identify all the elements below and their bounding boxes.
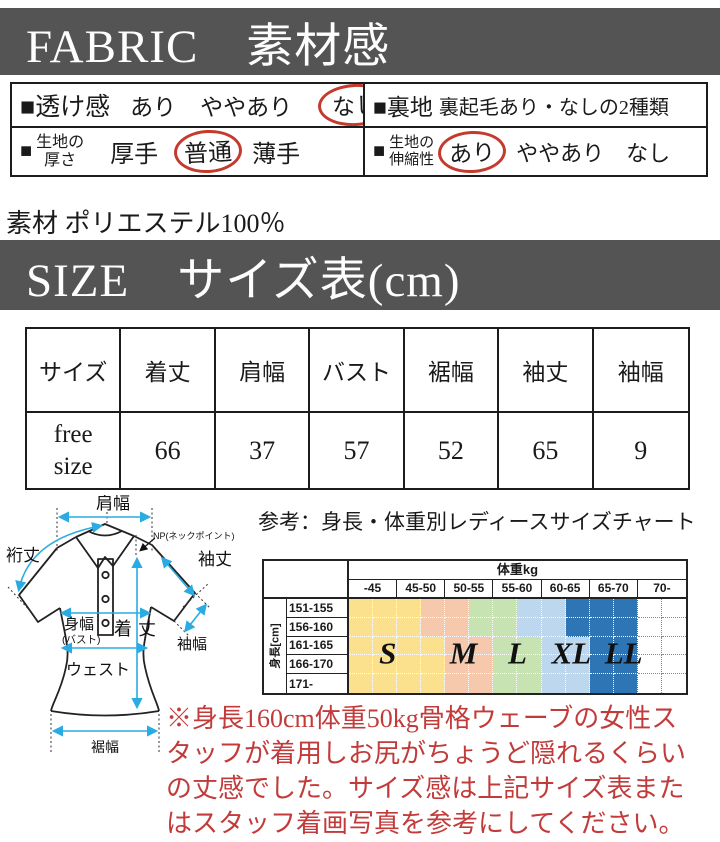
size-chart-cell (445, 599, 469, 618)
size-chart-cell (638, 599, 662, 618)
arrow-sleeve-width (186, 606, 205, 630)
size-chart-cell (662, 637, 686, 656)
fabric-option: 厚手 (110, 134, 158, 169)
size-chart-cell (614, 599, 638, 618)
size-chart-cell (542, 618, 566, 637)
size-chart-cell (421, 637, 445, 656)
fabric-option: ややあり (516, 136, 604, 168)
size-chart-cell (445, 618, 469, 637)
label-sleeve-width: 袖幅 (177, 636, 207, 653)
size-chart-cell (662, 674, 686, 693)
page: FABRIC 素材感 ■透け感 あり ややあり なし ■裏地 裏起毛あり・なしの… (0, 0, 720, 842)
height-rows-column: 151-155156-160161-165166-170171- (287, 599, 349, 693)
size-chart-cell (373, 599, 397, 618)
note-line: はスタッフ着画写真を参考にしてください。 (166, 806, 686, 841)
size-table-header-cell: バスト (310, 329, 404, 413)
stretch-label: 生地の 伸縮性 (389, 135, 434, 169)
size-chart-cell (662, 618, 686, 637)
size-chart-cell (542, 674, 566, 693)
weight-columns-row: -4545-5050-5555-6060-6565-7070- (349, 580, 686, 599)
size-table-row-label: free size (27, 413, 121, 488)
size-chart-cell (493, 674, 517, 693)
size-chart-cell (590, 599, 614, 618)
size-table-header-cell: 袖丈 (499, 329, 593, 413)
reference-chart-caption: 参考：身長・体重別レディースサイズチャート (258, 506, 696, 536)
size-chart-letter: LL (605, 637, 643, 668)
size-chart-cell (566, 674, 590, 693)
size-chart-cell (638, 618, 662, 637)
size-chart-cell (421, 655, 445, 674)
weight-col-label: 70- (638, 580, 686, 597)
size-chart-cell (421, 618, 445, 637)
lining-label: ■裏地 (373, 88, 433, 122)
size-chart-cell (373, 674, 397, 693)
size-chart-cell (421, 674, 445, 693)
weight-header-cell: 体重kg (349, 561, 686, 580)
height-row-label: 166-170 (287, 655, 347, 674)
bullet-square: ■ (20, 140, 32, 163)
note-text: ※身長160cm体重50kg骨格ウェーブの女性ス タッフが着用しお尻がちょうど隠… (166, 701, 686, 841)
circled-option: なし (317, 84, 365, 128)
label-body-width: 身幅 (64, 616, 94, 633)
lining-value: 裏起毛あり・なしの2種類 (439, 91, 669, 120)
size-chart-cell (397, 674, 421, 693)
size-chart-cell (662, 599, 686, 618)
size-chart-letter: S (379, 637, 396, 668)
size-chart-cell (349, 637, 373, 656)
size-chart-cell (373, 618, 397, 637)
fabric-row-stretch: ■ 生地の 伸縮性 あり ややあり なし (365, 128, 706, 175)
size-chart-cell (397, 655, 421, 674)
fabric-option: 薄手 (252, 134, 300, 169)
size-chart-cell (469, 618, 493, 637)
fabric-banner-title: FABRIC 素材感 (0, 7, 390, 76)
size-table-value-cell: 52 (405, 413, 499, 488)
label-garment-length: 着丈 (114, 619, 162, 639)
fabric-option: なし (626, 136, 670, 168)
fabric-banner: FABRIC 素材感 (0, 8, 720, 75)
note-line: の丈感でした。サイズ感は上記サイズ表また (166, 771, 686, 806)
size-table-header-cell: 袖幅 (594, 329, 688, 413)
weight-col-label: 65-70 (590, 580, 638, 597)
bullet-square: ■ (373, 140, 385, 163)
size-chart-cell (614, 674, 638, 693)
note-line: ※身長160cm体重50kg骨格ウェーブの女性ス (166, 701, 686, 736)
size-table-value-cell: 9 (594, 413, 688, 488)
fabric-row-lining: ■裏地 裏起毛あり・なしの2種類 (365, 84, 706, 128)
size-chart-cell (349, 674, 373, 693)
size-chart-cell (397, 599, 421, 618)
thickness-label: 生地の 厚さ (36, 134, 84, 170)
size-chart-table: 体重kg -4545-5050-5555-6060-6565-7070- 身長[… (262, 559, 688, 695)
size-table: サイズ 着丈 肩幅 バスト 裾幅 袖丈 袖幅 free size 66 37 5… (25, 327, 690, 490)
weight-col-label: 55-60 (493, 580, 541, 597)
label-body-width-sub: (バスト) (62, 634, 101, 646)
size-chart-cell (397, 637, 421, 656)
size-chart-cell (469, 599, 493, 618)
weight-col-label: 50-55 (445, 580, 493, 597)
size-table-header-cell: 着丈 (121, 329, 215, 413)
fabric-row-see-through: ■透け感 あり ややあり なし (12, 84, 365, 128)
size-chart-letter: L (508, 637, 527, 668)
size-chart-cell (517, 599, 541, 618)
height-row-label: 151-155 (287, 599, 347, 618)
label-sleeve-length: 袖丈 (198, 550, 232, 569)
size-chart-cell (517, 618, 541, 637)
size-chart-cell (566, 618, 590, 637)
material-text: 素材 ポリエステル100％ (6, 203, 286, 240)
size-chart-cell (349, 599, 373, 618)
fabric-option: ややあり (200, 88, 292, 122)
size-chart-cell (614, 618, 638, 637)
size-chart-cell (445, 674, 469, 693)
note-line: タッフが着用しお尻がちょうど隠れるくらい (166, 736, 686, 771)
shirt-outline (19, 524, 195, 716)
size-table-value-cell: 66 (121, 413, 215, 488)
size-chart-cell (590, 618, 614, 637)
size-table-header-cell: 裾幅 (405, 329, 499, 413)
size-chart-cell (421, 599, 445, 618)
size-table-value-cell: 37 (216, 413, 310, 488)
height-row-label: 161-165 (287, 637, 347, 656)
size-chart-cell (493, 599, 517, 618)
size-chart-cell (662, 655, 686, 674)
size-chart-cell (517, 674, 541, 693)
size-chart-blank-cell (264, 561, 349, 599)
measure-arrows (19, 517, 205, 731)
fabric-row-thickness: ■ 生地の 厚さ 厚手 普通 薄手 (12, 128, 365, 175)
size-chart-cell (349, 618, 373, 637)
size-chart-cell (397, 618, 421, 637)
label-yuki-length: 裄丈 (6, 546, 40, 565)
size-chart-body: SMLXLLL (349, 599, 686, 693)
size-chart-cell (493, 618, 517, 637)
height-axis-label: 身長[cm] (267, 623, 283, 668)
height-row-label: 171- (287, 674, 347, 693)
size-chart-letter: XL (552, 637, 592, 668)
arrow-sleeve-length (163, 559, 193, 594)
size-table-value-cell: 65 (499, 413, 593, 488)
height-row-label: 156-160 (287, 618, 347, 637)
size-banner-title: SIZE サイズ表(cm) (0, 241, 461, 310)
weight-col-label: 60-65 (542, 580, 590, 597)
size-table-value-cell: 57 (310, 413, 404, 488)
size-banner: SIZE サイズ表(cm) (0, 240, 720, 310)
label-hem-width: 裾幅 (91, 739, 119, 755)
circled-option: 普通 (173, 128, 243, 174)
circled-option: あり (437, 129, 507, 175)
see-through-label: ■透け感 (20, 87, 110, 123)
size-table-header-cell: 肩幅 (216, 329, 310, 413)
size-chart-cell (542, 599, 566, 618)
label-waist: ウェスト (66, 661, 130, 679)
weight-col-label: 45-50 (397, 580, 445, 597)
size-table-header-cell: サイズ (27, 329, 121, 413)
size-chart-letter: M (450, 637, 478, 668)
weight-col-label: -45 (349, 580, 397, 597)
size-chart-cell (590, 674, 614, 693)
size-chart-cell (638, 674, 662, 693)
label-shoulder-width: 肩幅 (96, 495, 130, 513)
height-axis-cell: 身長[cm] (264, 599, 287, 693)
size-chart-cell (566, 599, 590, 618)
fabric-table: ■透け感 あり ややあり なし ■裏地 裏起毛あり・なしの2種類 ■ 生地の 厚… (10, 82, 708, 177)
label-neck-point: NP(ネックポイント) (153, 531, 235, 541)
size-chart-cell (349, 655, 373, 674)
fabric-option: あり (130, 88, 176, 122)
size-chart-cell (469, 674, 493, 693)
